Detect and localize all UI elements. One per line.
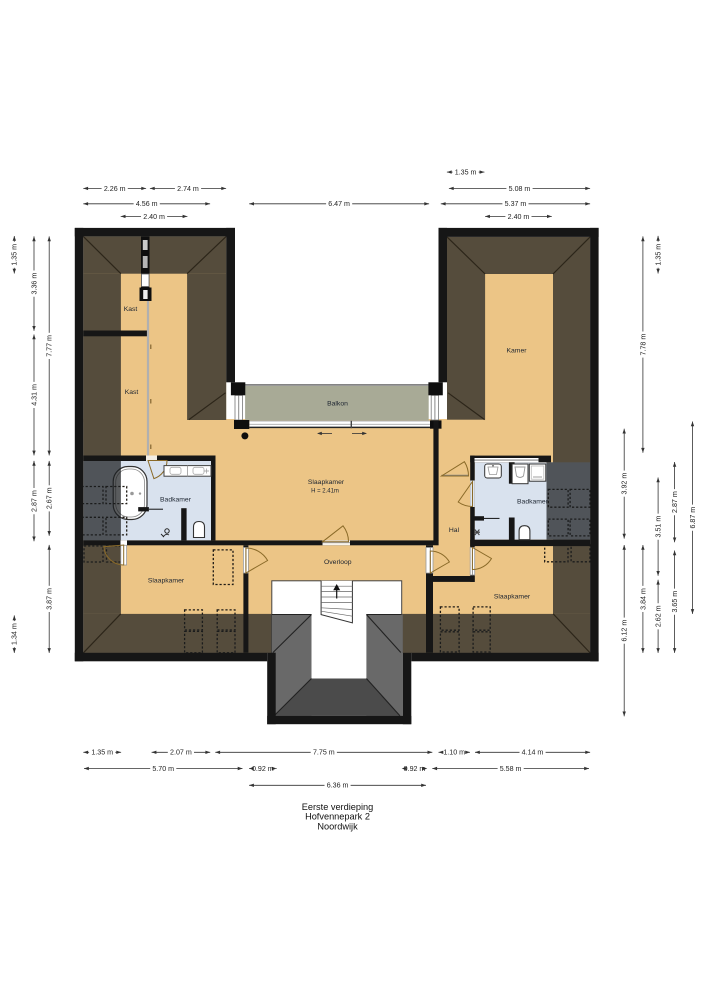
svg-text:2.87 m: 2.87 m (30, 490, 38, 512)
svg-text:Kamer: Kamer (506, 348, 527, 355)
svg-text:1.35 m: 1.35 m (655, 244, 663, 266)
svg-text:2.74 m: 2.74 m (177, 185, 199, 193)
svg-text:5.70 m: 5.70 m (152, 765, 174, 773)
svg-text:4.14 m: 4.14 m (522, 749, 544, 757)
svg-text:2.67 m: 2.67 m (46, 487, 54, 509)
svg-text:Balkon: Balkon (327, 401, 348, 408)
svg-text:Hal: Hal (449, 527, 460, 534)
svg-text:6.12 m: 6.12 m (621, 620, 629, 642)
svg-text:Slaapkamer: Slaapkamer (494, 594, 531, 601)
svg-text:2.07 m: 2.07 m (170, 749, 192, 757)
svg-text:Noordwijk: Noordwijk (317, 821, 358, 831)
svg-text:3.87 m: 3.87 m (46, 588, 54, 610)
svg-text:6.87 m: 6.87 m (689, 507, 697, 529)
svg-text:1.35 m: 1.35 m (91, 749, 113, 757)
svg-text:2.87 m: 2.87 m (671, 491, 679, 513)
svg-text:6.36 m: 6.36 m (327, 782, 349, 790)
svg-text:Slaapkamer: Slaapkamer (148, 578, 185, 585)
svg-text:0.92 m: 0.92 m (252, 765, 274, 773)
svg-text:3.36 m: 3.36 m (30, 273, 38, 295)
svg-text:5.58 m: 5.58 m (500, 765, 522, 773)
svg-text:3.51 m: 3.51 m (655, 516, 663, 538)
svg-text:H = 2.41m: H = 2.41m (311, 489, 339, 495)
svg-text:5.37 m: 5.37 m (505, 200, 527, 208)
svg-text:4.31 m: 4.31 m (30, 384, 38, 406)
svg-text:2.62 m: 2.62 m (655, 605, 663, 627)
svg-text:5.08 m: 5.08 m (509, 185, 531, 193)
svg-text:1.34 m: 1.34 m (11, 623, 19, 645)
svg-text:1.35 m: 1.35 m (11, 244, 19, 266)
svg-text:Badkamer: Badkamer (517, 499, 549, 506)
svg-text:1.35 m: 1.35 m (455, 169, 477, 177)
svg-text:3.84 m: 3.84 m (639, 588, 647, 610)
svg-text:7.77 m: 7.77 m (46, 335, 54, 357)
svg-text:Overloop: Overloop (324, 559, 352, 566)
svg-text:Badkamer: Badkamer (160, 497, 192, 504)
svg-text:0.92 m: 0.92 m (404, 765, 426, 773)
svg-text:Hofvennepark 2: Hofvennepark 2 (305, 812, 370, 822)
svg-text:3.65 m: 3.65 m (671, 591, 679, 613)
svg-text:2.26 m: 2.26 m (104, 185, 126, 193)
svg-text:Eerste verdieping: Eerste verdieping (302, 802, 374, 812)
svg-text:3.92 m: 3.92 m (621, 473, 629, 495)
svg-text:2.40 m: 2.40 m (143, 213, 165, 221)
svg-text:4.56 m: 4.56 m (136, 200, 158, 208)
svg-text:7.75 m: 7.75 m (313, 749, 335, 757)
svg-text:1.10 m: 1.10 m (443, 749, 465, 757)
svg-text:Slaapkamer: Slaapkamer (308, 479, 345, 486)
svg-text:2.40 m: 2.40 m (508, 213, 530, 221)
svg-text:6.47 m: 6.47 m (328, 200, 350, 208)
svg-text:Kast: Kast (125, 389, 139, 396)
svg-text:7.78 m: 7.78 m (639, 334, 647, 356)
svg-text:Kast: Kast (124, 306, 138, 313)
